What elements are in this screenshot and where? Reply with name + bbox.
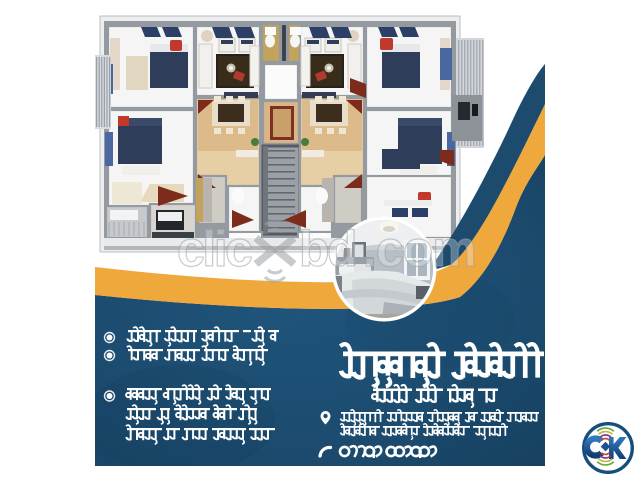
svg-text:bd: bd [299,221,355,277]
svg-text:clic: clic [177,221,252,277]
svg-text:.com: .com [363,221,476,277]
